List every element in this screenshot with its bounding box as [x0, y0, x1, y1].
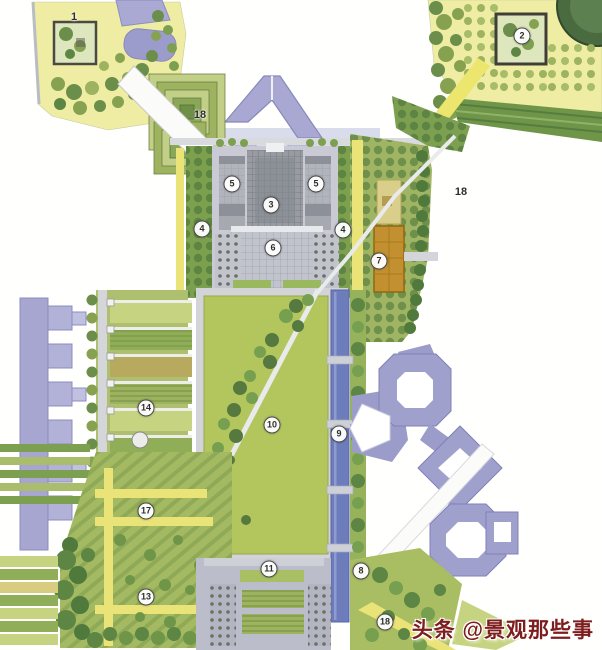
watermark: 头条 @景观那些事: [412, 614, 594, 644]
plan-marker-10: 10: [264, 417, 281, 434]
plan-marker-2: 2: [514, 28, 531, 45]
plan-marker-5: 5: [308, 176, 325, 193]
plan-marker-18: 18: [377, 614, 394, 631]
plan-marker-4: 4: [335, 222, 352, 239]
master-plan: 121855318446714109171181318 头条 @景观那些事: [0, 0, 602, 650]
plan-marker-5: 5: [224, 176, 241, 193]
plan-markers: 121855318446714109171181318: [0, 0, 602, 650]
plan-marker-18: 18: [455, 186, 467, 198]
plan-marker-17: 17: [138, 503, 155, 520]
plan-marker-14: 14: [138, 400, 155, 417]
plan-marker-4: 4: [194, 221, 211, 238]
plan-marker-11: 11: [261, 561, 278, 578]
plan-marker-9: 9: [331, 426, 348, 443]
plan-marker-18: 18: [194, 109, 206, 121]
plan-marker-6: 6: [265, 240, 282, 257]
plan-marker-13: 13: [138, 589, 155, 606]
plan-marker-1: 1: [71, 11, 77, 23]
plan-marker-3: 3: [263, 197, 280, 214]
plan-marker-8: 8: [353, 563, 370, 580]
plan-marker-7: 7: [371, 253, 388, 270]
